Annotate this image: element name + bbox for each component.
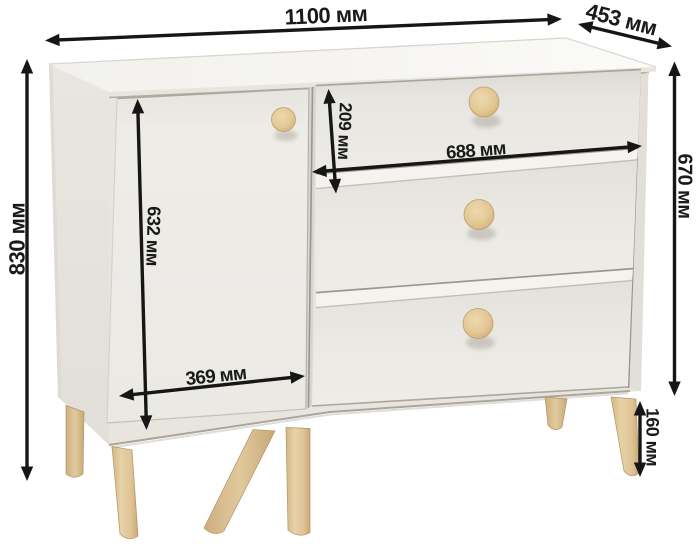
svg-text:160 мм: 160 мм <box>642 408 662 466</box>
svg-text:830 мм: 830 мм <box>4 203 29 275</box>
svg-text:209 мм: 209 мм <box>334 102 356 160</box>
svg-text:1100 мм: 1100 мм <box>284 1 368 30</box>
svg-text:670 мм: 670 мм <box>674 154 696 219</box>
svg-text:632 мм: 632 мм <box>142 206 165 266</box>
